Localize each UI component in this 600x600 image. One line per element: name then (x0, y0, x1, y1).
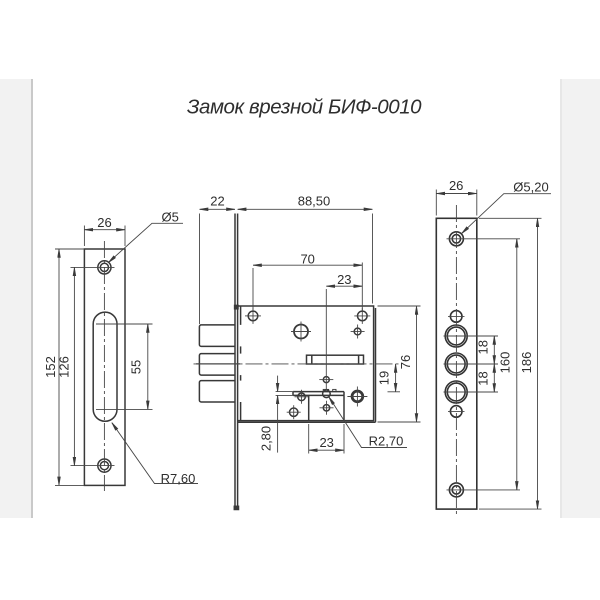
svg-text:186: 186 (519, 352, 534, 374)
svg-text:26: 26 (97, 215, 111, 230)
svg-text:2,80: 2,80 (258, 426, 273, 451)
svg-text:R7,60: R7,60 (161, 471, 196, 486)
svg-text:126: 126 (56, 356, 71, 378)
svg-text:19: 19 (377, 371, 392, 385)
svg-text:23: 23 (337, 272, 351, 287)
svg-text:Ø5: Ø5 (162, 209, 179, 224)
svg-text:22: 22 (210, 194, 224, 209)
svg-text:88,50: 88,50 (298, 194, 331, 209)
svg-text:Ø5,20: Ø5,20 (513, 180, 548, 195)
svg-text:18: 18 (475, 340, 490, 354)
svg-text:R2,70: R2,70 (369, 433, 404, 448)
svg-text:26: 26 (449, 178, 463, 193)
svg-text:18: 18 (475, 371, 490, 385)
svg-text:23: 23 (319, 435, 333, 450)
svg-text:76: 76 (398, 355, 413, 369)
svg-text:55: 55 (129, 360, 144, 374)
svg-text:Замок врезной БИФ-0010: Замок врезной БИФ-0010 (187, 95, 422, 118)
svg-text:160: 160 (498, 352, 513, 374)
svg-text:70: 70 (300, 251, 314, 266)
